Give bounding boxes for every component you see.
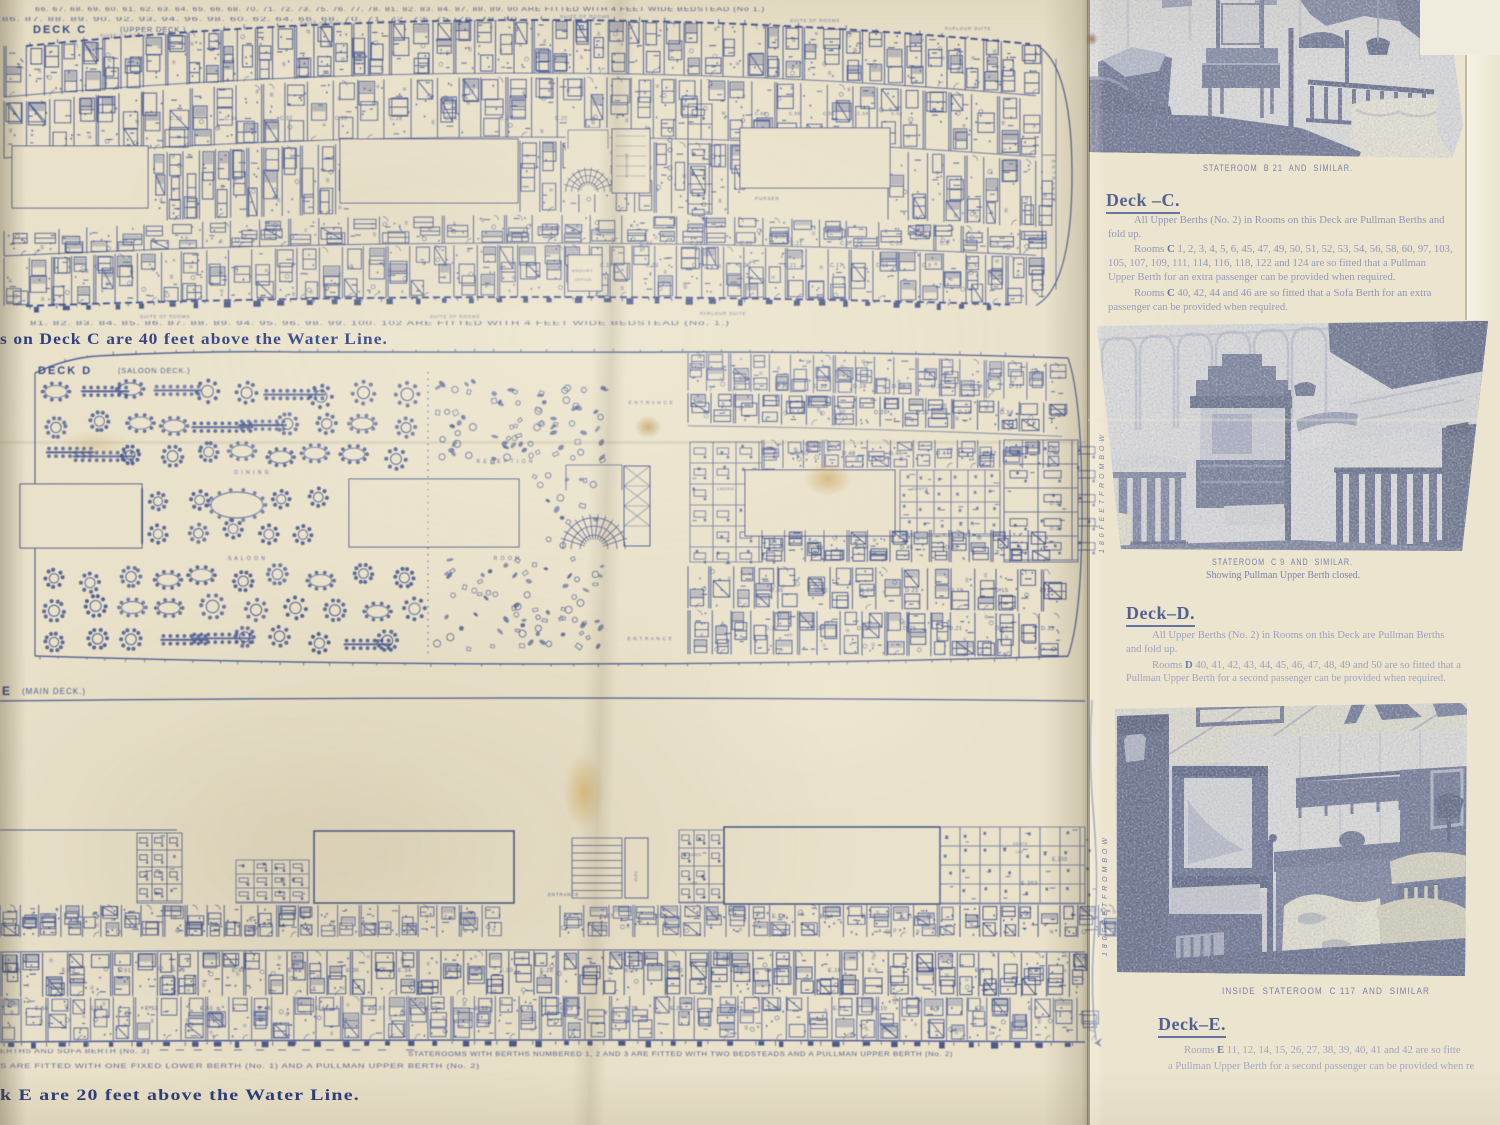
svg-text:C.29: C.29 bbox=[692, 263, 705, 269]
svg-text:E N T R A N C E: E N T R A N C E bbox=[1051, 160, 1056, 203]
svg-text:D.21: D.21 bbox=[949, 626, 963, 632]
svg-text:D.15: D.15 bbox=[995, 588, 1009, 594]
svg-text:ELEV: ELEV bbox=[634, 871, 638, 882]
svg-text:E.36: E.36 bbox=[346, 968, 359, 974]
svg-text:S A L O O N: S A L O O N bbox=[228, 556, 266, 562]
svg-text:E.29: E.29 bbox=[560, 1006, 573, 1012]
svg-text:C.28: C.28 bbox=[390, 116, 403, 122]
svg-text:E.50: E.50 bbox=[200, 1006, 213, 1012]
svg-text:D.37: D.37 bbox=[765, 626, 779, 632]
svg-text:C.17: C.17 bbox=[840, 241, 853, 247]
svg-text:E.18: E.18 bbox=[768, 968, 781, 974]
svg-text:D.50: D.50 bbox=[795, 451, 809, 457]
svg-text:D.36: D.36 bbox=[775, 384, 789, 390]
svg-text:D.16: D.16 bbox=[970, 384, 984, 390]
svg-text:C.56: C.56 bbox=[823, 111, 835, 116]
svg-text:D.49: D.49 bbox=[810, 545, 824, 551]
svg-text:E.45: E.45 bbox=[232, 968, 245, 974]
svg-text:STATEROOMS WITH BERTHS NUMBERE: STATEROOMS WITH BERTHS NUMBERED 1, 2 AND… bbox=[408, 1051, 953, 1058]
svg-text:C.52: C.52 bbox=[891, 111, 903, 116]
svg-text:D.14: D.14 bbox=[1000, 410, 1014, 416]
svg-text:SUITE OF ROOMS: SUITE OF ROOMS bbox=[100, 33, 150, 38]
svg-text:E.31: E.31 bbox=[520, 1006, 533, 1012]
svg-text:E.5: E.5 bbox=[975, 968, 985, 974]
svg-text:LAV: LAV bbox=[690, 881, 698, 885]
svg-text:ERTHS AND SOFA BERTH (No. 3): ERTHS AND SOFA BERTH (No. 3) bbox=[0, 1049, 150, 1055]
svg-text:D.34: D.34 bbox=[790, 410, 804, 416]
svg-text:D.46: D.46 bbox=[889, 451, 903, 457]
svg-text:E.15: E.15 bbox=[772, 914, 785, 920]
svg-text:C.60: C.60 bbox=[755, 111, 767, 116]
svg-text:C.32: C.32 bbox=[280, 116, 293, 122]
svg-text:D.25: D.25 bbox=[903, 626, 917, 632]
svg-text:E.35: E.35 bbox=[425, 1006, 438, 1012]
svg-text:SUITE OF ROOMS: SUITE OF ROOMS bbox=[430, 314, 480, 319]
svg-text:E.16: E.16 bbox=[828, 968, 841, 974]
svg-text:(SALOON DECK.): (SALOON DECK.) bbox=[118, 366, 190, 375]
svg-text:E.19: E.19 bbox=[768, 1006, 781, 1012]
svg-text:E.26: E.26 bbox=[655, 914, 668, 920]
svg-text:D.33: D.33 bbox=[811, 626, 825, 632]
svg-text:E.9: E.9 bbox=[868, 968, 878, 974]
svg-text:LAV: LAV bbox=[1016, 850, 1024, 854]
svg-text:C.21: C.21 bbox=[790, 241, 803, 247]
svg-text:D.20: D.20 bbox=[931, 384, 945, 390]
svg-text:ENTRANCE: ENTRANCE bbox=[548, 892, 579, 897]
svg-text:E.30: E.30 bbox=[500, 968, 513, 974]
svg-text:D.42: D.42 bbox=[983, 451, 997, 457]
svg-text:66. 67. 68. 69. 60. 61. 62. 63: 66. 67. 68. 69. 60. 61. 62. 63. 64. 65. … bbox=[35, 7, 765, 13]
svg-text:GENTS: GENTS bbox=[1013, 842, 1028, 846]
svg-text:C.25: C.25 bbox=[738, 263, 751, 269]
svg-text:E.23: E.23 bbox=[670, 1006, 683, 1012]
svg-text:E.11: E.11 bbox=[900, 914, 913, 920]
svg-text:E.28: E.28 bbox=[540, 968, 553, 974]
svg-text:D.23: D.23 bbox=[905, 588, 919, 594]
svg-text:D.27: D.27 bbox=[860, 588, 874, 594]
svg-text:E.12: E.12 bbox=[862, 914, 875, 920]
svg-text:SUITE OF ROOMS: SUITE OF ROOMS bbox=[790, 18, 840, 23]
svg-text:Showing Pullman Upper Berth cl: Showing Pullman Upper Berth closed. bbox=[1206, 570, 1360, 581]
svg-text:C.24: C.24 bbox=[500, 116, 513, 122]
svg-text:E.7: E.7 bbox=[928, 968, 938, 974]
svg-text:D.17: D.17 bbox=[995, 626, 1009, 632]
svg-text:(MAIN DECK.): (MAIN DECK.) bbox=[22, 687, 86, 696]
svg-text:D.13: D.13 bbox=[1041, 626, 1055, 632]
svg-text:C.37: C.37 bbox=[600, 263, 613, 269]
svg-text:C.36: C.36 bbox=[170, 116, 183, 122]
svg-text:C.9: C.9 bbox=[922, 263, 931, 269]
svg-text:R E C E P T I O N: R E C E P T I O N bbox=[476, 459, 533, 465]
svg-text:DECK D: DECK D bbox=[38, 365, 92, 377]
svg-text:C.13: C.13 bbox=[876, 263, 889, 269]
svg-text:C.5: C.5 bbox=[990, 241, 999, 247]
svg-text:D.35: D.35 bbox=[770, 588, 784, 594]
svg-text:D.18: D.18 bbox=[958, 410, 972, 416]
svg-text:C.21: C.21 bbox=[784, 263, 797, 269]
svg-text:C.22: C.22 bbox=[555, 116, 568, 122]
svg-text:E.14: E.14 bbox=[820, 914, 833, 920]
svg-text:PARLOUR SUITE: PARLOUR SUITE bbox=[700, 311, 746, 316]
svg-text:STATEROOM C 9 AND SIMILAR.: STATEROOM C 9 AND SIMILAR. bbox=[1212, 557, 1353, 567]
svg-text:C.5: C.5 bbox=[968, 263, 977, 269]
svg-text:E.8: E.8 bbox=[930, 1006, 940, 1012]
svg-text:E: E bbox=[2, 684, 12, 698]
svg-text:D.26: D.26 bbox=[874, 410, 888, 416]
svg-text:C.13: C.13 bbox=[890, 241, 903, 247]
svg-text:E.51: E.51 bbox=[118, 968, 131, 974]
svg-text:D.22: D.22 bbox=[916, 410, 930, 416]
svg-text:E.33: E.33 bbox=[475, 1006, 488, 1012]
svg-text:S ARE FITTED WITH ONE FIXED LO: S ARE FITTED WITH ONE FIXED LOWER BERTH … bbox=[0, 1063, 480, 1070]
svg-text:D.28: D.28 bbox=[853, 384, 867, 390]
svg-text:INSIDE STATEROOM C 117 AND: INSIDE STATEROOM C 117 AND SIMILAR bbox=[1222, 986, 1430, 996]
svg-text:E.203: E.203 bbox=[1021, 881, 1038, 887]
svg-text:C.17: C.17 bbox=[830, 263, 843, 269]
svg-text:C.33: C.33 bbox=[646, 263, 659, 269]
svg-text:E.53: E.53 bbox=[62, 968, 75, 974]
svg-text:E.55: E.55 bbox=[8, 968, 21, 974]
svg-text:1 8 0 F E E T F R O M B: 1 8 0 F E E T F R O M B O W bbox=[1102, 837, 1109, 956]
svg-text:E.37: E.37 bbox=[372, 1006, 385, 1012]
svg-text:SUITE OF ROOMS: SUITE OF ROOMS bbox=[300, 21, 350, 26]
svg-text:D.40: D.40 bbox=[1047, 451, 1060, 457]
svg-text:D.11: D.11 bbox=[1040, 588, 1053, 594]
svg-text:SUITE OF ROOMS: SUITE OF ROOMS bbox=[140, 314, 190, 319]
svg-text:C.30: C.30 bbox=[335, 116, 348, 122]
svg-text:C.54: C.54 bbox=[857, 111, 869, 116]
svg-text:D.12: D.12 bbox=[1009, 384, 1023, 390]
svg-text:D.43: D.43 bbox=[945, 545, 959, 551]
svg-text:E N T R A N C E: E N T R A N C E bbox=[629, 400, 674, 405]
svg-text:C.29: C.29 bbox=[690, 241, 703, 247]
svg-text:D.31: D.31 bbox=[815, 588, 829, 594]
svg-text:C.9: C.9 bbox=[940, 241, 949, 247]
svg-text:C.33: C.33 bbox=[640, 241, 653, 247]
svg-text:D.48: D.48 bbox=[842, 451, 856, 457]
svg-text:C.25: C.25 bbox=[740, 241, 753, 247]
svg-text:E N T R A N C E: E N T R A N C E bbox=[628, 636, 673, 641]
svg-text:E.22: E.22 bbox=[670, 968, 683, 974]
svg-text:E.52: E.52 bbox=[145, 1006, 158, 1012]
svg-text:LADIES: LADIES bbox=[686, 853, 701, 857]
svg-text:D I N I N G: D I N I N G bbox=[234, 470, 269, 476]
svg-text:PURSER: PURSER bbox=[755, 196, 780, 201]
svg-text:k E are 20 feet above the Wate: k E are 20 feet above the Water Line. bbox=[0, 1087, 360, 1104]
svg-text:D.39: D.39 bbox=[1050, 526, 1063, 532]
svg-text:LADIES: LADIES bbox=[717, 486, 734, 491]
svg-text:E.56: E.56 bbox=[35, 1006, 48, 1012]
svg-text:1 8 0 F E E T F R O M B: 1 8 0 F E E T F R O M B O W bbox=[1099, 434, 1106, 553]
svg-text:E.32: E.32 bbox=[448, 968, 461, 974]
svg-text:E.24: E.24 bbox=[625, 968, 638, 974]
svg-text:E.43: E.43 bbox=[288, 968, 301, 974]
svg-text:E.21: E.21 bbox=[730, 1006, 743, 1012]
svg-text:E.10: E.10 bbox=[874, 1006, 887, 1012]
svg-text:SUITE OF ROOMS: SUITE OF ROOMS bbox=[560, 14, 610, 19]
svg-text:C.58: C.58 bbox=[789, 111, 801, 116]
svg-text:E.49: E.49 bbox=[172, 968, 185, 974]
svg-text:E.34: E.34 bbox=[398, 968, 411, 974]
svg-text:C.34: C.34 bbox=[225, 116, 238, 122]
svg-text:D.44: D.44 bbox=[936, 451, 950, 457]
svg-text:D.32: D.32 bbox=[814, 384, 828, 390]
svg-text:81. 82. 83. 84. 85. 86. 87. 88: 81. 82. 83. 84. 85. 86. 87. 88. 89. 94. … bbox=[30, 321, 730, 327]
svg-text:E.54: E.54 bbox=[90, 1006, 103, 1012]
svg-text:DECK C: DECK C bbox=[33, 24, 87, 36]
svg-text:C.26: C.26 bbox=[445, 116, 458, 122]
svg-text:E.200: E.200 bbox=[1052, 857, 1068, 863]
svg-text:STATEROOM B 21 AND SIMILAR.: STATEROOM B 21 AND SIMILAR. bbox=[1203, 163, 1353, 173]
svg-text:D.19: D.19 bbox=[950, 588, 964, 594]
svg-text:E.3: E.3 bbox=[1028, 968, 1038, 974]
svg-text:s on Deck C are 40 feet above: s on Deck C are 40 feet above the Water … bbox=[0, 331, 388, 348]
svg-text:D.30: D.30 bbox=[832, 410, 846, 416]
svg-text:D.38: D.38 bbox=[1050, 501, 1063, 507]
svg-text:D.45: D.45 bbox=[900, 545, 914, 551]
svg-text:R O O M: R O O M bbox=[494, 556, 521, 562]
svg-text:E.6: E.6 bbox=[975, 1006, 985, 1012]
svg-text:OFFICE: OFFICE bbox=[575, 277, 592, 282]
svg-text:E.46: E.46 bbox=[258, 1006, 271, 1012]
svg-text:E.4: E.4 bbox=[1028, 1006, 1038, 1012]
svg-text:D.29: D.29 bbox=[857, 626, 871, 632]
svg-text:ENQUIRY: ENQUIRY bbox=[572, 268, 593, 273]
svg-text:E.20: E.20 bbox=[730, 968, 743, 974]
svg-text:D.24: D.24 bbox=[892, 384, 906, 390]
svg-text:E.25: E.25 bbox=[625, 1006, 638, 1012]
svg-text:E.17: E.17 bbox=[833, 1006, 846, 1012]
svg-text:PARLOUR SUITE: PARLOUR SUITE bbox=[945, 26, 991, 31]
svg-text:E.44: E.44 bbox=[315, 1006, 328, 1012]
svg-text:E.27: E.27 bbox=[600, 914, 613, 920]
svg-text:D.47: D.47 bbox=[855, 545, 869, 551]
